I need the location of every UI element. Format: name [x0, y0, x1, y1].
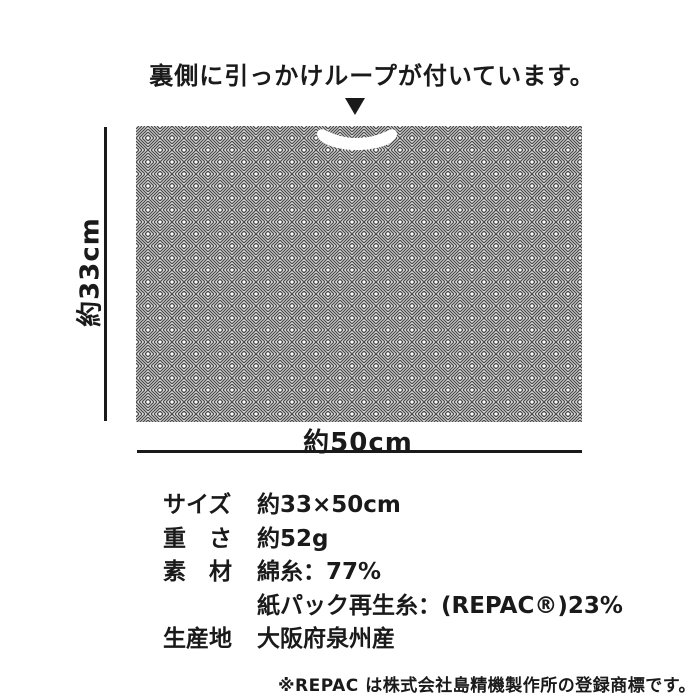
trademark-footnote: ※REPAC は株式会社島精機製作所の登録商標です。 [278, 671, 696, 696]
spec-label-size: サイズ [163, 491, 229, 519]
spec-row-weight: 重 さ 約52g [163, 525, 623, 559]
down-triangle-icon [345, 98, 365, 115]
width-label: 約50cm [303, 422, 413, 459]
cloth-texture [136, 126, 582, 422]
spec-row-size: サイズ 約33×50cm [163, 491, 623, 525]
spec-table: サイズ 約33×50cm 重 さ 約52g 素 材 綿糸：77% 紙パック再生糸… [163, 491, 623, 659]
spec-label-weight: 重 さ [163, 525, 229, 553]
spec-row-material: 素 材 綿糸：77% [163, 558, 623, 592]
loop-note-text: 裏側に引っかけループが付いています。 [44, 56, 700, 91]
spec-value-origin: 大阪府泉州産 [257, 625, 395, 653]
spec-row-material-2: 紙パック再生糸：(REPAC®)23% [163, 592, 623, 626]
spec-label-material: 素 材 [163, 558, 229, 586]
height-label: 約33cm [70, 217, 107, 327]
spec-value-size: 約33×50cm [257, 491, 401, 519]
width-dimension-line [137, 450, 582, 453]
spec-value-material-2: 紙パック再生糸：(REPAC®)23% [257, 592, 623, 620]
spec-value-weight: 約52g [257, 525, 328, 553]
cloth-swatch [136, 126, 582, 422]
spec-row-origin: 生産地 大阪府泉州産 [163, 625, 623, 659]
spec-label-origin: 生産地 [163, 625, 229, 653]
product-spec-image: 裏側に引っかけループが付いています。 約33cm 約50cm サイズ 約33×5… [0, 0, 700, 700]
spec-value-material: 綿糸：77% [257, 558, 381, 586]
